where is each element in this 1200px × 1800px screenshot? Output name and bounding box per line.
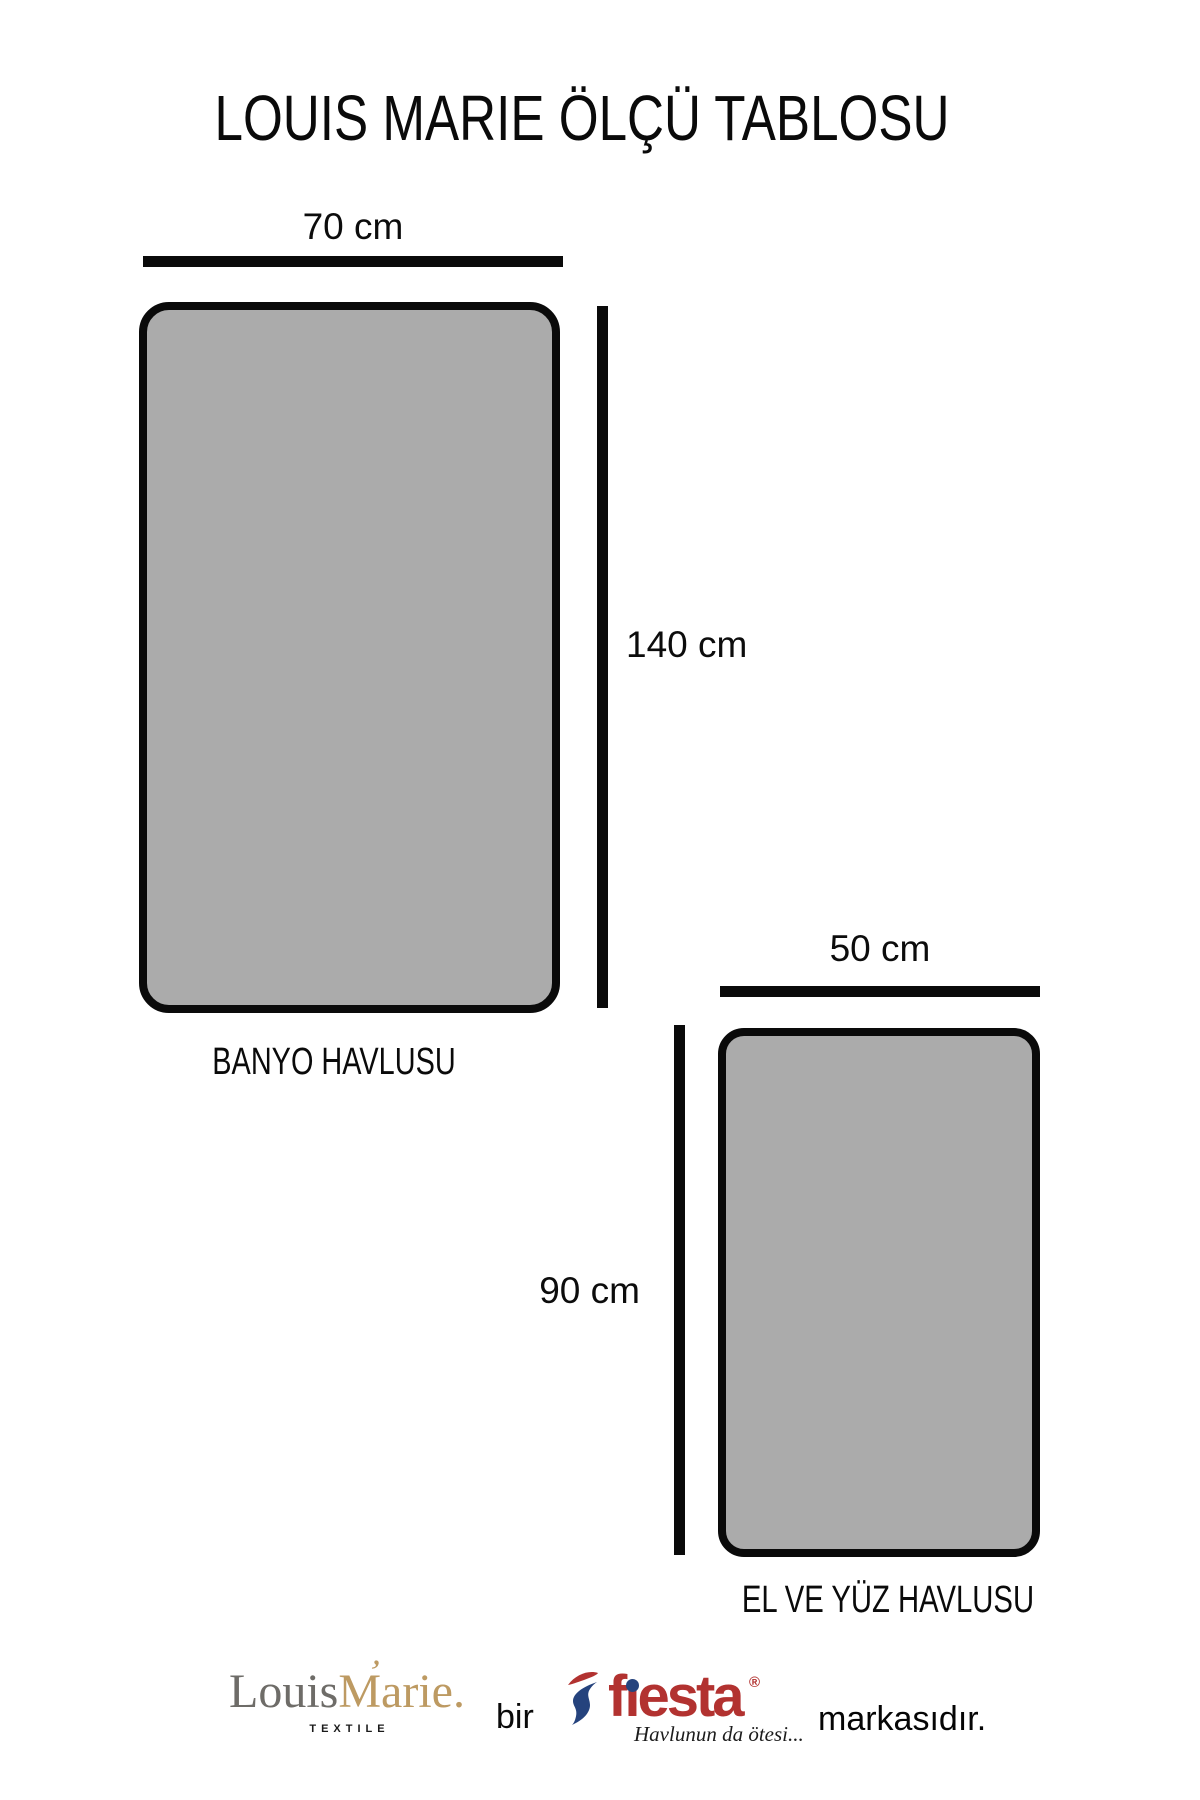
page-title: LOUIS MARIE ÖLÇÜ TABLOSU: [102, 86, 1062, 150]
bath-towel-name: BANYO HAVLUSU: [182, 1043, 486, 1081]
bath-towel-width-bar: [143, 256, 563, 267]
fiesta-word-pre: f: [608, 1664, 624, 1729]
flame-blue-stroke: [572, 1682, 597, 1725]
hand-towel-width-bar: [720, 986, 1040, 997]
textile-label: TEXTILE: [222, 1723, 472, 1735]
markasidir-text: markasıdır.: [818, 1702, 986, 1736]
fiesta-i-dot: [626, 1679, 639, 1692]
fiesta-word-post: esta: [637, 1664, 741, 1729]
bath-towel-height-label: 140 cm: [626, 626, 747, 663]
fiesta-word-dotless-i: ı: [624, 1664, 637, 1729]
hand-towel-shape: [718, 1028, 1040, 1557]
fiesta-wordmark: fıesta: [608, 1664, 742, 1731]
fiesta-flame-icon: [566, 1670, 600, 1726]
fiesta-registered-mark: ®: [749, 1674, 760, 1691]
fiesta-tagline: Havlunun da ötesi...: [634, 1722, 804, 1747]
bir-text: bir: [496, 1700, 534, 1734]
hand-towel-width-label: 50 cm: [720, 930, 1040, 967]
hand-towel-name: EL VE YÜZ HAVLUSU: [734, 1581, 1042, 1619]
louis-marie-wordmark: Louis’Marie.: [222, 1668, 472, 1716]
bath-towel-shape: [139, 302, 560, 1013]
flame-red-stroke: [568, 1672, 598, 1685]
hand-towel-height-label: 90 cm: [440, 1272, 640, 1309]
size-chart-page: LOUIS MARIE ÖLÇÜ TABLOSU 70 cm 140 cm BA…: [0, 0, 1200, 1800]
hand-towel-height-bar: [674, 1025, 685, 1555]
bath-towel-height-bar: [597, 306, 608, 1008]
marie-text: Marie.: [338, 1665, 465, 1718]
louis-text: Louis: [229, 1665, 338, 1718]
bath-towel-width-label: 70 cm: [143, 208, 563, 245]
louis-marie-logo: Louis’Marie. TEXTILE: [222, 1668, 472, 1735]
fiesta-logo: fıesta ® Havlunun da ötesi...: [566, 1662, 806, 1747]
